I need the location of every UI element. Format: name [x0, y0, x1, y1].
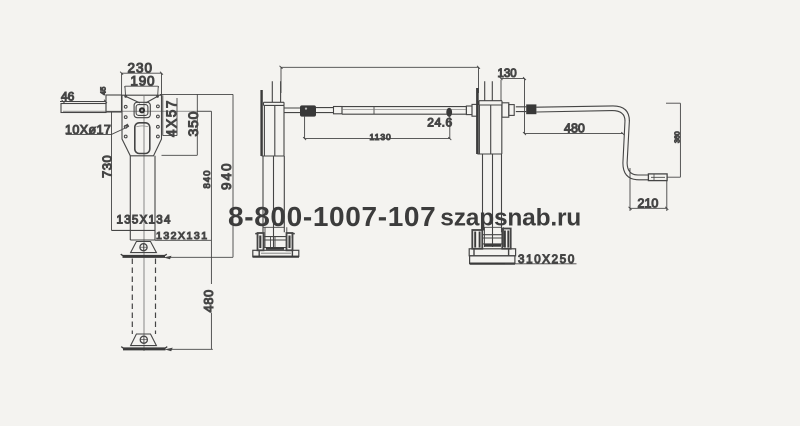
svg-text:8-800-1007-107: 8-800-1007-107: [228, 201, 436, 232]
svg-text:730: 730: [100, 155, 115, 178]
svg-text:szapsnab.ru: szapsnab.ru: [440, 205, 581, 232]
svg-text:360: 360: [675, 131, 682, 143]
svg-text:480: 480: [201, 289, 216, 312]
svg-text:480: 480: [564, 122, 585, 136]
svg-text:940: 940: [219, 161, 234, 190]
svg-text:210: 210: [638, 196, 659, 210]
svg-text:135X134: 135X134: [117, 215, 172, 227]
svg-text:4X57: 4X57: [164, 99, 179, 137]
svg-text:1130: 1130: [370, 132, 392, 142]
svg-text:350: 350: [185, 111, 201, 137]
svg-text:45: 45: [99, 87, 108, 95]
svg-text:840: 840: [202, 170, 213, 189]
svg-text:24.6: 24.6: [427, 116, 452, 130]
